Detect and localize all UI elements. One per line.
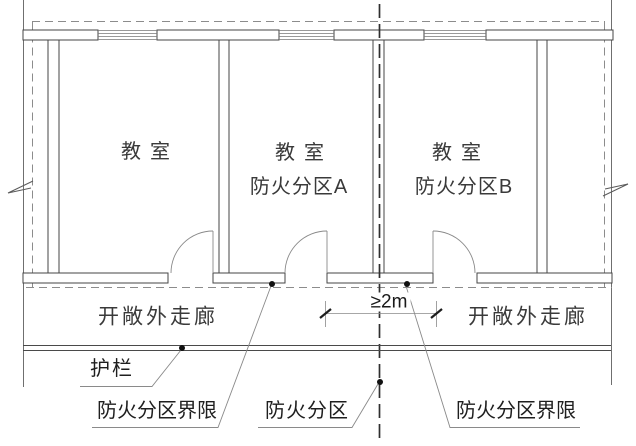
door-zone-b xyxy=(433,231,475,273)
room-zone-a-label: 教室 xyxy=(275,143,333,163)
room-zone-b-label: 教室 xyxy=(432,143,490,163)
exterior-wall-top xyxy=(23,30,613,40)
guardrail-lines xyxy=(23,346,611,351)
door-zone-a xyxy=(285,231,327,273)
fire-zone-b-label: 防火分区B xyxy=(415,177,513,197)
fire-zone-label: 防火分区 xyxy=(265,401,349,421)
break-symbol-left xyxy=(8,181,33,193)
fire-boundary-right-label: 防火分区界限 xyxy=(456,401,576,421)
floor-plan-canvas: 教室 教室 防火分区A 教室 防火分区B 开敞外走廊 开敞外走廊 ≥2m 护栏 … xyxy=(0,0,636,446)
guardrail-label: 护栏 xyxy=(90,359,134,379)
fire-boundary-left-label: 防火分区界限 xyxy=(97,401,217,421)
door-left-room xyxy=(171,231,213,273)
corridor-right-label: 开敞外走廊 xyxy=(468,307,588,328)
window-zone-a xyxy=(279,31,334,40)
min-distance-label: ≥2m xyxy=(368,293,411,312)
window-left-room xyxy=(98,31,157,40)
break-symbol-right xyxy=(603,184,628,196)
corridor-left-label: 开敞外走廊 xyxy=(98,307,218,328)
bottom-wall xyxy=(23,273,612,283)
fire-zone-a-label: 防火分区A xyxy=(250,177,348,197)
window-zone-b xyxy=(424,31,486,40)
room-left-label: 教室 xyxy=(121,142,179,162)
